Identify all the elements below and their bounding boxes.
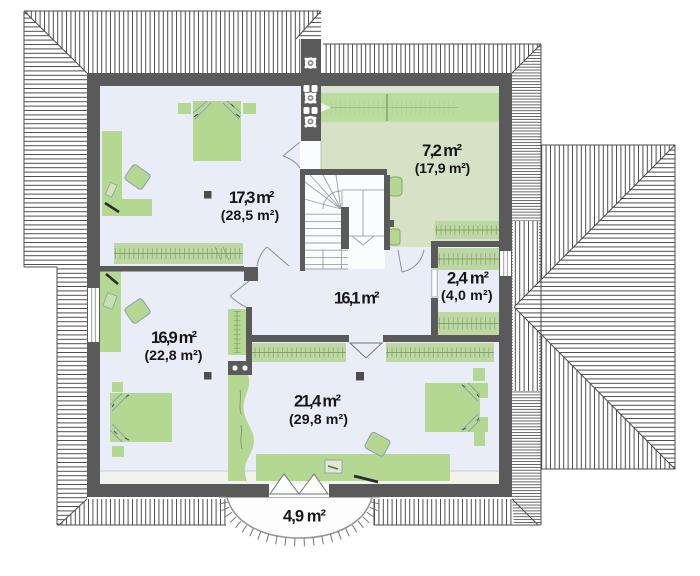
svg-text:(17,9 m²): (17,9 m²) bbox=[415, 161, 471, 177]
svg-text:16,9 m²: 16,9 m² bbox=[151, 328, 197, 347]
svg-text:21,4 m²: 21,4 m² bbox=[294, 392, 341, 411]
svg-text:(22,8 m²): (22,8 m²) bbox=[145, 348, 203, 364]
svg-text:16,1 m²: 16,1 m² bbox=[334, 289, 380, 308]
svg-text:(4,0 m²): (4,0 m²) bbox=[441, 288, 493, 304]
svg-text:7,2 m²: 7,2 m² bbox=[422, 141, 462, 160]
svg-text:4,9 m²: 4,9 m² bbox=[283, 507, 326, 526]
svg-text:2,4 m²: 2,4 m² bbox=[447, 269, 489, 288]
svg-text:(29,8 m²): (29,8 m²) bbox=[289, 412, 348, 428]
svg-text:(28,5 m²): (28,5 m²) bbox=[221, 208, 280, 224]
svg-text:17,3 m²: 17,3 m² bbox=[229, 188, 275, 207]
